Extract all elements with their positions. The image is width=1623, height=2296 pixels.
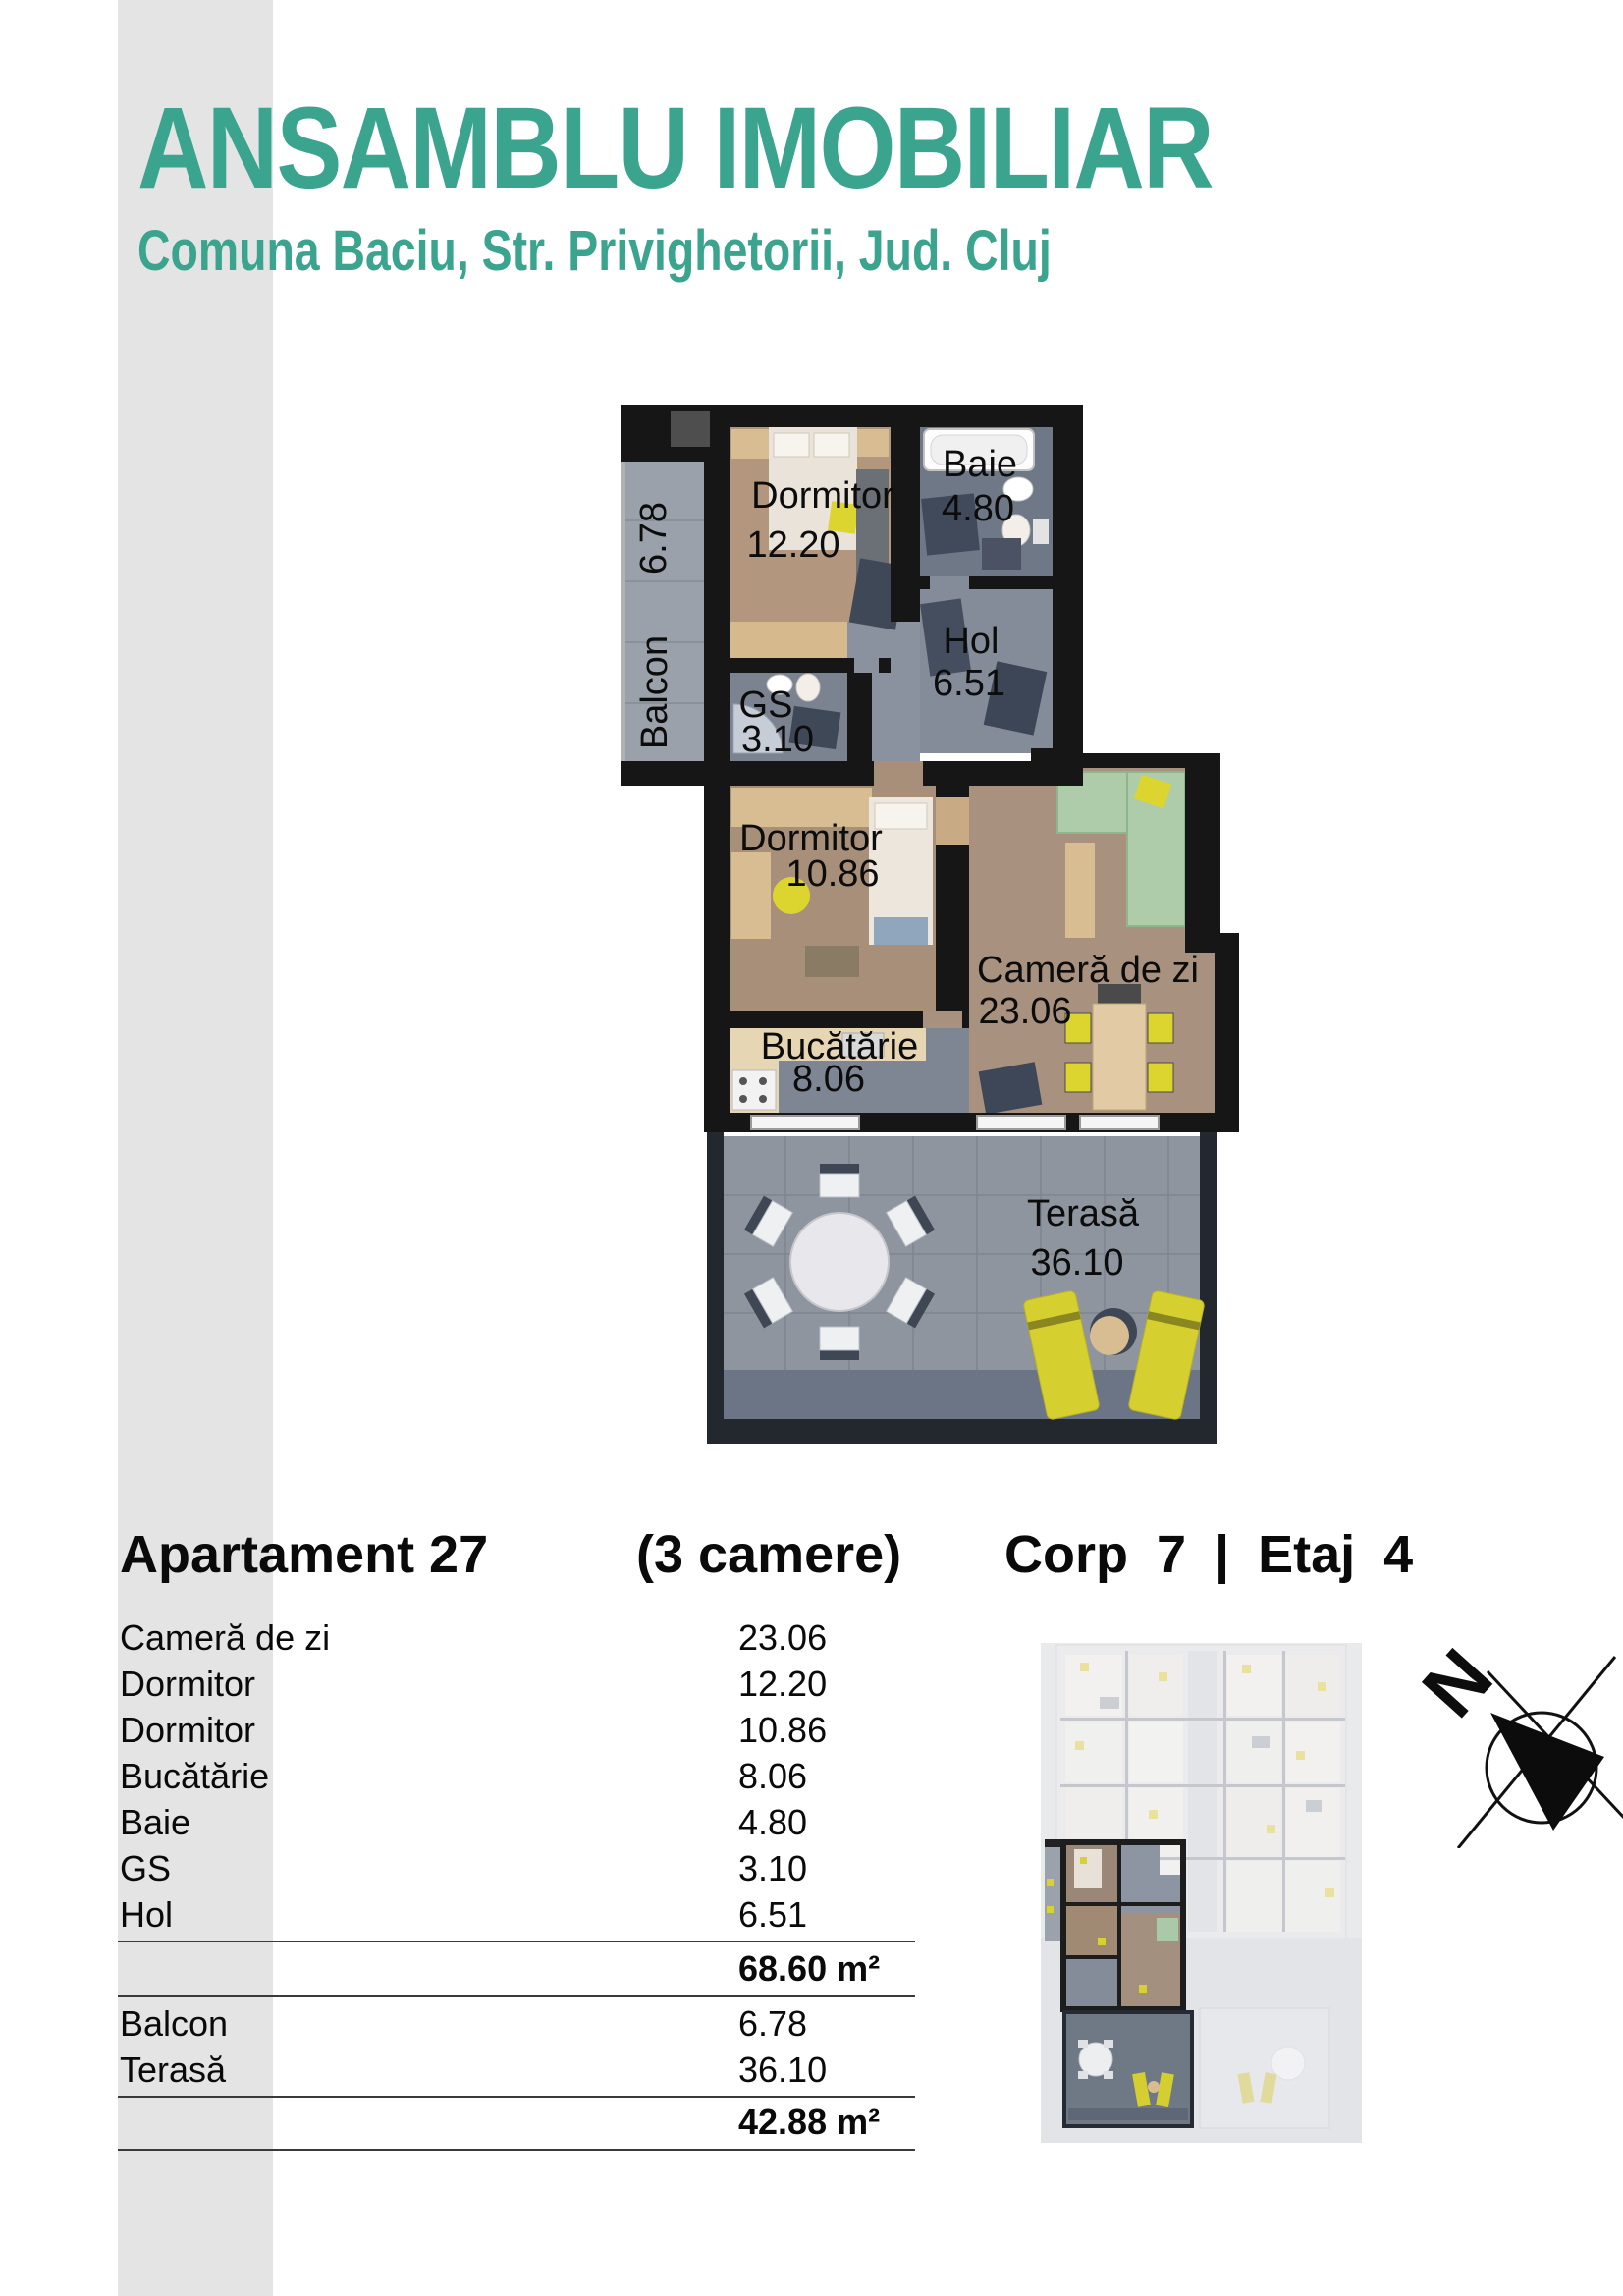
pillow xyxy=(774,433,809,457)
desk2 xyxy=(731,852,771,939)
row-label: Baie xyxy=(120,1802,190,1843)
room-area: 12.20 xyxy=(746,524,839,566)
room-area: 23.06 xyxy=(978,991,1071,1032)
row-value: 6.78 xyxy=(738,2003,807,2045)
room-area: 6.51 xyxy=(933,663,1005,704)
door-gap xyxy=(874,761,923,786)
stove xyxy=(732,1070,776,1110)
row-label: Hol xyxy=(120,1894,173,1936)
door-gap xyxy=(923,1011,962,1028)
table-rule xyxy=(118,2096,915,2098)
row-value: 10.86 xyxy=(738,1710,827,1751)
page-subtitle: Comuna Baciu, Str. Privighetorii, Jud. C… xyxy=(137,220,1279,283)
apartment-title: Apartament 27 xyxy=(120,1524,488,1585)
row-value: 23.06 xyxy=(738,1617,827,1659)
page-title: ANSAMBLU IMOBILIAR xyxy=(137,90,1402,206)
row-value: 8.06 xyxy=(738,1756,807,1797)
yellow-chair xyxy=(1148,1063,1173,1092)
highlighted-unit xyxy=(1045,1839,1192,2126)
room-label: Baie xyxy=(943,444,1017,485)
row-label: Dormitor xyxy=(120,1664,255,1705)
row-label: Bucătărie xyxy=(120,1756,269,1797)
row-label: Balcon xyxy=(120,2003,228,2045)
nightstand xyxy=(731,429,769,459)
annex-total: 42.88 m² xyxy=(738,2102,880,2143)
room-label: Cameră de zi xyxy=(977,950,1199,991)
desk xyxy=(730,622,847,658)
toilet-tank xyxy=(1033,519,1049,544)
room-area: 36.10 xyxy=(1030,1242,1123,1284)
page-title-text: ANSAMBLU IMOBILIAR xyxy=(137,90,1213,206)
row-label: GS xyxy=(120,1848,171,1889)
pillow xyxy=(814,433,849,457)
corp-etaj-label: Corp 7 | Etaj 4 xyxy=(1004,1524,1413,1585)
dining-table xyxy=(1093,1004,1146,1110)
door-gap xyxy=(930,576,969,589)
room-area: 4.80 xyxy=(942,488,1014,529)
row-label: Dormitor xyxy=(120,1710,255,1751)
gs-toilet xyxy=(796,674,820,701)
dresser xyxy=(805,946,859,977)
row-label: Cameră de zi xyxy=(120,1617,330,1659)
nightstand xyxy=(856,429,889,457)
room-area: 6.78 xyxy=(633,502,675,574)
compass-needle xyxy=(1490,1713,1604,1831)
balcony-dark-square xyxy=(671,411,710,447)
bath-shadow xyxy=(982,538,1021,570)
room-area: 8.06 xyxy=(792,1059,865,1100)
room-area: 10.86 xyxy=(785,853,879,895)
north-label: N xyxy=(1406,1632,1509,1732)
room-label: Balcon xyxy=(634,635,676,749)
page: ANSAMBLU IMOBILIAR Comuna Baciu, Str. Pr… xyxy=(0,0,1623,2296)
yellow-chair xyxy=(1148,1013,1173,1043)
north-arrow: N xyxy=(1404,1622,1623,1848)
left-gray-bar xyxy=(118,0,273,2296)
room-label: Dormitor xyxy=(751,475,894,517)
table-rule xyxy=(118,1995,915,1997)
yellow-chair xyxy=(1065,1063,1091,1092)
pillow xyxy=(875,803,927,829)
balcony-rail xyxy=(621,462,625,761)
door-threshold xyxy=(936,797,969,845)
row-value: 4.80 xyxy=(738,1802,807,1843)
row-value: 12.20 xyxy=(738,1664,827,1705)
room-label: Hol xyxy=(943,621,999,662)
blue-pillow xyxy=(874,917,928,945)
site-plan-thumbnail xyxy=(1041,1643,1362,2143)
floor-plan: Dormitor 12.20 Baie 4.80 Hol 6.51 GS 3.1… xyxy=(609,398,1249,1450)
row-value: 6.51 xyxy=(738,1894,807,1936)
side-table xyxy=(1090,1316,1129,1355)
page-subtitle-text: Comuna Baciu, Str. Privighetorii, Jud. C… xyxy=(137,220,1052,283)
row-value: 3.10 xyxy=(738,1848,807,1889)
table-rule xyxy=(118,1941,915,1942)
round-table xyxy=(790,1213,889,1311)
terrace-edge-strip xyxy=(724,1370,1200,1419)
room-label: Terasă xyxy=(1027,1193,1140,1234)
console-table xyxy=(1065,843,1095,938)
room-area: 3.10 xyxy=(741,719,814,760)
row-label: Terasă xyxy=(120,2050,226,2091)
interior-total: 68.60 m² xyxy=(738,1948,880,1990)
ghost-terrace xyxy=(1200,2008,1329,2128)
table-rule xyxy=(118,2149,915,2151)
row-value: 36.10 xyxy=(738,2050,827,2091)
apartment-rooms-note: (3 camere) xyxy=(636,1524,901,1585)
